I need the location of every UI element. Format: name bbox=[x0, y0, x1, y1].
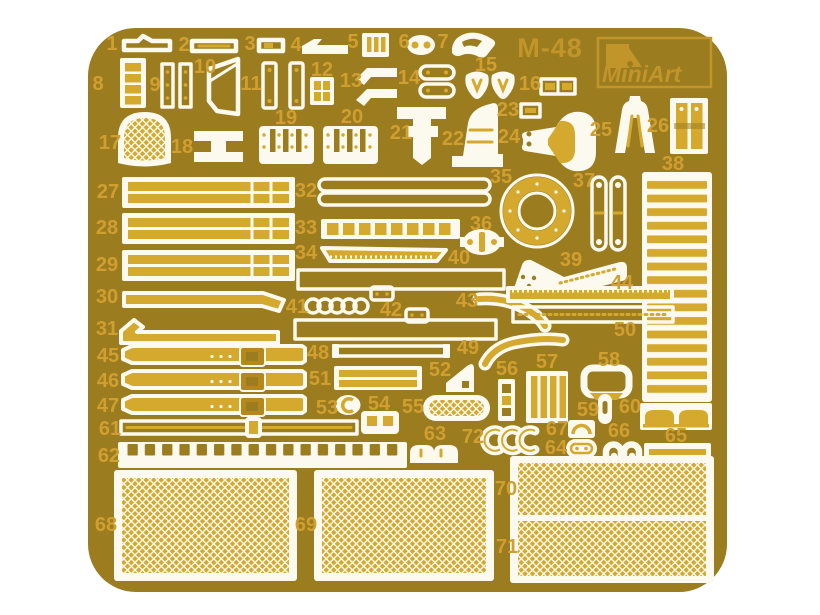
part-34-shape bbox=[322, 248, 446, 261]
part-number-59: 59 bbox=[577, 399, 599, 421]
part-64-shape bbox=[566, 439, 597, 458]
part-number-15: 15 bbox=[475, 54, 497, 76]
part-number-43: 43 bbox=[456, 290, 478, 312]
part-number-12: 12 bbox=[311, 59, 333, 81]
part-number-21: 21 bbox=[390, 122, 412, 144]
part-number-36: 36 bbox=[470, 213, 492, 235]
part-number-44: 44 bbox=[611, 272, 634, 294]
part-number-35: 35 bbox=[490, 166, 512, 188]
part-number-31: 31 bbox=[96, 318, 118, 340]
product-code: M-48 bbox=[517, 33, 583, 63]
part-number-54: 54 bbox=[368, 393, 391, 415]
part-number-71: 71 bbox=[496, 536, 518, 558]
part-number-60: 60 bbox=[619, 396, 641, 418]
part-number-5: 5 bbox=[347, 31, 358, 53]
part-47-shape bbox=[123, 396, 305, 416]
part-62-shape bbox=[118, 442, 407, 468]
part-number-33: 33 bbox=[295, 217, 317, 239]
part-number-25: 25 bbox=[590, 119, 612, 141]
photoetch-sheet-image: M-48 MiniArt 123456789101112131415161718… bbox=[0, 0, 820, 615]
part-number-72: 72 bbox=[462, 426, 484, 448]
part-number-62: 62 bbox=[98, 445, 120, 467]
part-6-shape bbox=[407, 35, 435, 55]
part-number-27: 27 bbox=[97, 181, 119, 203]
brand-logo-text: MiniArt bbox=[602, 61, 683, 87]
part-number-70: 70 bbox=[495, 478, 517, 500]
part-53-shape bbox=[336, 395, 361, 415]
part-number-68: 68 bbox=[95, 514, 117, 536]
part-number-14: 14 bbox=[398, 67, 421, 89]
part-number-63: 63 bbox=[424, 423, 446, 445]
part-number-6: 6 bbox=[398, 31, 409, 53]
part-number-52: 52 bbox=[429, 359, 451, 381]
part-44-shape bbox=[508, 288, 672, 301]
part-number-28: 28 bbox=[96, 217, 118, 239]
part-17-shape bbox=[118, 112, 171, 167]
part-33-shape bbox=[321, 219, 460, 239]
part-68-shape bbox=[114, 470, 297, 581]
part-51-shape bbox=[334, 366, 422, 390]
part-number-53: 53 bbox=[316, 397, 338, 419]
part-26-shape bbox=[670, 98, 708, 154]
part-number-26: 26 bbox=[647, 115, 669, 137]
part-number-41: 41 bbox=[286, 296, 308, 318]
part-2-shape bbox=[192, 41, 236, 51]
part-number-45: 45 bbox=[97, 345, 119, 367]
part-number-51: 51 bbox=[309, 368, 331, 390]
part-number-17: 17 bbox=[99, 132, 121, 154]
part-number-56: 56 bbox=[496, 358, 518, 380]
part-number-64: 64 bbox=[545, 437, 568, 459]
part-29-shape bbox=[122, 250, 295, 281]
part-number-40: 40 bbox=[448, 247, 470, 269]
part-45-shape bbox=[123, 346, 305, 366]
part-number-29: 29 bbox=[96, 254, 118, 276]
part-number-30: 30 bbox=[96, 286, 118, 308]
part-56-shape bbox=[498, 379, 515, 421]
part-number-55: 55 bbox=[402, 396, 424, 418]
part-number-69: 69 bbox=[295, 514, 317, 536]
part-number-38: 38 bbox=[662, 153, 684, 175]
part-27-shape bbox=[122, 177, 295, 208]
part-28-shape bbox=[122, 213, 295, 244]
part-57-shape bbox=[526, 371, 568, 423]
part-61-shape bbox=[121, 419, 357, 436]
part-number-11: 11 bbox=[240, 73, 261, 95]
part-number-8: 8 bbox=[92, 73, 103, 95]
part-20-shape bbox=[323, 126, 378, 164]
part-number-50: 50 bbox=[614, 319, 636, 341]
part-number-1: 1 bbox=[106, 33, 117, 55]
part-number-34: 34 bbox=[295, 242, 318, 264]
part-number-3: 3 bbox=[244, 33, 255, 55]
part-number-19: 19 bbox=[275, 107, 297, 129]
part-number-39: 39 bbox=[560, 249, 582, 271]
part-number-9: 9 bbox=[149, 74, 160, 96]
part-70-71-shape bbox=[510, 456, 714, 583]
part-number-7: 7 bbox=[437, 31, 448, 53]
part-number-46: 46 bbox=[97, 370, 119, 392]
part-number-42: 42 bbox=[380, 299, 402, 321]
part-19-shape bbox=[259, 126, 314, 164]
part-number-61: 61 bbox=[99, 418, 121, 440]
part-number-18: 18 bbox=[171, 136, 193, 158]
part-number-10: 10 bbox=[194, 56, 216, 78]
part-number-16: 16 bbox=[519, 73, 541, 95]
part-12-shape bbox=[310, 77, 334, 105]
part-number-13: 13 bbox=[340, 70, 362, 92]
part-number-22: 22 bbox=[442, 128, 464, 150]
part-number-2: 2 bbox=[178, 34, 189, 56]
part-number-65: 65 bbox=[665, 425, 687, 447]
part-67-shape bbox=[568, 420, 595, 438]
part-number-48: 48 bbox=[307, 342, 329, 364]
part-number-23: 23 bbox=[497, 99, 519, 121]
part-number-66: 66 bbox=[608, 420, 630, 442]
part-46-shape bbox=[123, 371, 305, 391]
part-number-67: 67 bbox=[546, 418, 568, 440]
part-number-24: 24 bbox=[498, 126, 521, 148]
part-number-37: 37 bbox=[573, 170, 595, 192]
part-number-20: 20 bbox=[341, 106, 363, 128]
part-number-4: 4 bbox=[290, 34, 302, 56]
part-8-shape bbox=[120, 58, 146, 108]
part-number-49: 49 bbox=[457, 337, 479, 359]
part-69-shape bbox=[314, 470, 494, 581]
part-number-32: 32 bbox=[295, 180, 317, 202]
part-number-47: 47 bbox=[97, 395, 119, 417]
part-55-shape bbox=[423, 395, 490, 421]
part-number-58: 58 bbox=[598, 349, 620, 371]
part-number-57: 57 bbox=[536, 351, 558, 373]
part-5-shape bbox=[362, 33, 389, 57]
